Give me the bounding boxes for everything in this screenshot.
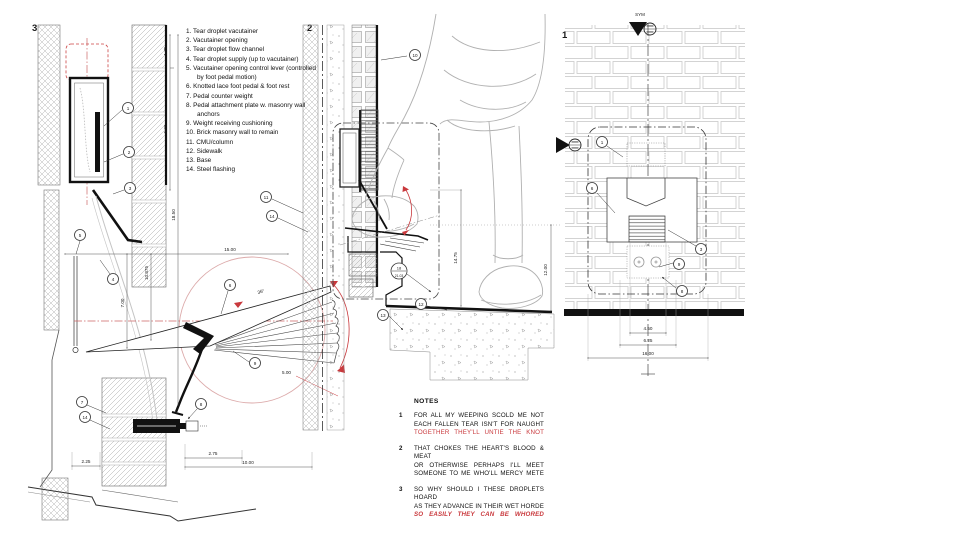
angle-dim: 36° xyxy=(257,288,265,295)
dim-625: 6.25 xyxy=(644,338,653,343)
note-line: AS THEY ADVANCE IN THEIR WET HORDE xyxy=(414,503,544,512)
svg-text:14: 14 xyxy=(269,214,275,219)
dim-1200: 12.00 xyxy=(543,264,548,276)
dim-700: 7.00 xyxy=(120,298,125,307)
svg-text:14: 14 xyxy=(82,415,88,420)
svg-text:11: 11 xyxy=(264,195,269,200)
svg-text:9: 9 xyxy=(254,361,257,366)
existing-wall-upper xyxy=(38,25,60,185)
note-line-red: TOGETHER THEY'LL UNTIE THE KNOT xyxy=(414,429,544,438)
svg-text:18: 18 xyxy=(397,266,402,271)
human-figure xyxy=(352,14,545,308)
figure-thigh xyxy=(388,14,436,148)
legend: 1. Tear droplet vacutainer 2. Vacutainer… xyxy=(186,27,320,175)
figure-rear-leg xyxy=(489,122,523,263)
callout-2: 2 xyxy=(124,147,135,158)
notes-title: NOTES xyxy=(414,398,551,405)
detail-1-label: 1 xyxy=(562,30,568,41)
dim-450: 4.50 xyxy=(644,326,653,331)
dim-15: 15.00 xyxy=(224,247,236,252)
svg-text:9: 9 xyxy=(678,262,681,267)
svg-text:1: 1 xyxy=(127,106,130,111)
callout-8: 8 xyxy=(196,399,207,410)
svg-text:4: 4 xyxy=(112,277,115,282)
callout-3e: 3 xyxy=(696,244,707,255)
svg-text:1: 1 xyxy=(601,140,604,145)
svg-text:8: 8 xyxy=(200,402,203,407)
figure-hip xyxy=(440,14,545,124)
callout-14: 14 xyxy=(80,412,91,423)
svg-text:6: 6 xyxy=(591,186,594,191)
callout-4: 4 xyxy=(108,274,119,285)
svg-text:5: 5 xyxy=(79,233,82,238)
dim-1850: 18.50 xyxy=(171,209,176,221)
note-2: 2 THAT CHOKES THE HEART'S BLOOD & MEAT O… xyxy=(399,445,551,479)
svg-text:6: 6 xyxy=(229,283,232,288)
note-1: 1 FOR ALL MY WEEPING SCOLD ME NOT EACH F… xyxy=(399,412,551,438)
legend-item: 11. CMU/column xyxy=(186,138,320,147)
callout-11: 11 xyxy=(261,192,272,203)
callout-3: 3 xyxy=(125,183,136,194)
legend-item: 12. Sidewalk xyxy=(186,147,320,156)
legend-item: 5. Vacutainer opening control lever (con… xyxy=(186,64,320,82)
dim-1600: 16.00 xyxy=(642,351,654,356)
dim-175: 1.75 xyxy=(163,46,168,55)
legend-item: 8. Pedal attachment plate w. masonry wal… xyxy=(186,101,320,119)
callout-5: 5 xyxy=(75,230,86,241)
legend-item: 3. Tear droplet flow channel xyxy=(186,45,320,54)
dim-275: 2.75 xyxy=(209,451,218,456)
vacutainer xyxy=(70,78,108,182)
callout-6: 6 xyxy=(225,280,236,291)
svg-text:8: 8 xyxy=(681,289,684,294)
legend-item: 6. Knotted lace foot pedal & foot rest xyxy=(186,82,320,91)
dim-600: 6.00 xyxy=(163,124,168,133)
pedal-attachment-plate xyxy=(133,419,208,433)
counterweight-rod xyxy=(74,256,77,346)
legend-item: 4. Tear droplet supply (up to vacutainer… xyxy=(186,55,320,64)
callout-14b: 14 xyxy=(267,211,278,222)
callout-8e: 8 xyxy=(677,286,688,297)
svg-text:10: 10 xyxy=(412,53,418,58)
svg-text:21.03: 21.03 xyxy=(395,274,404,278)
sym-label: SYM xyxy=(635,12,645,17)
callout-12: 12 xyxy=(416,299,427,310)
svg-text:3: 3 xyxy=(700,247,703,252)
dim-1475: 14.75 xyxy=(453,252,458,264)
notes-block: NOTES 1 FOR ALL MY WEEPING SCOLD ME NOT … xyxy=(399,398,551,527)
svg-text:12: 12 xyxy=(418,302,424,307)
note-line-red: SO EASILY THEY CAN BE WHORED xyxy=(414,511,544,520)
dim-225: 2.25 xyxy=(82,459,91,464)
callout-1: 1 xyxy=(123,103,134,114)
callout-6e: 6 xyxy=(587,183,598,194)
detail-ref-bubble: 18 21.03 xyxy=(391,263,431,292)
concrete-column xyxy=(327,25,344,430)
legend-item: 10. Brick masonry wall to remain xyxy=(186,128,320,137)
legend-item: 2. Vacutainer opening xyxy=(186,36,320,45)
legend-item: 14. Steel flashing xyxy=(186,165,320,174)
counterweight xyxy=(73,347,78,352)
legend-item: 9. Weight receiving cushioning xyxy=(186,119,320,128)
existing-wall-mid xyxy=(44,190,59,330)
sidewalk-elevation xyxy=(564,309,744,316)
dim-10875: 10.875 xyxy=(144,266,149,280)
detail-1-elevation: 1 SYM xyxy=(556,12,745,378)
legend-item: 1. Tear droplet vacutainer xyxy=(186,27,320,36)
note-line: OR OTHERWISE PERHAPS I'LL MEET xyxy=(414,462,544,471)
svg-text:2: 2 xyxy=(128,150,131,155)
concrete-base xyxy=(390,309,554,380)
note-line: EACH FALLEN TEAR ISN'T FOR NAUGHT xyxy=(414,421,544,430)
legend-item: 13. Base xyxy=(186,156,320,165)
svg-text:3: 3 xyxy=(129,186,132,191)
pedal-front xyxy=(629,216,665,242)
callout-1e: 1 xyxy=(597,137,608,148)
detail-2-dimensions xyxy=(430,190,551,311)
callout-9: 9 xyxy=(250,358,261,369)
svg-text:13: 13 xyxy=(380,313,386,318)
svg-text:7: 7 xyxy=(81,400,84,405)
existing-wall-base xyxy=(42,478,68,520)
callout-9e: 9 xyxy=(674,259,685,270)
note-line: SOMEONE TO ME WHO'LL MERCY METE xyxy=(414,470,544,479)
callout-7: 7 xyxy=(77,397,88,408)
legend-item: 7. Pedal counter weight xyxy=(186,92,320,101)
note-3: 3 SO WHY SHOULD I THESE DROPLETS HOARD A… xyxy=(399,486,551,520)
callout-10: 10 xyxy=(410,50,421,61)
note-line: SO WHY SHOULD I THESE DROPLETS HOARD xyxy=(414,486,544,503)
drawing-sheet: 3 xyxy=(0,0,960,540)
note-line: THAT CHOKES THE HEART'S BLOOD & MEAT xyxy=(414,445,544,462)
callout-13: 13 xyxy=(378,310,389,321)
dim-1000: 10.00 xyxy=(242,460,254,465)
detail-3-label: 3 xyxy=(32,23,37,34)
travel-dim: 5.00 xyxy=(282,370,291,375)
note-line: FOR ALL MY WEEPING SCOLD ME NOT xyxy=(414,412,544,421)
